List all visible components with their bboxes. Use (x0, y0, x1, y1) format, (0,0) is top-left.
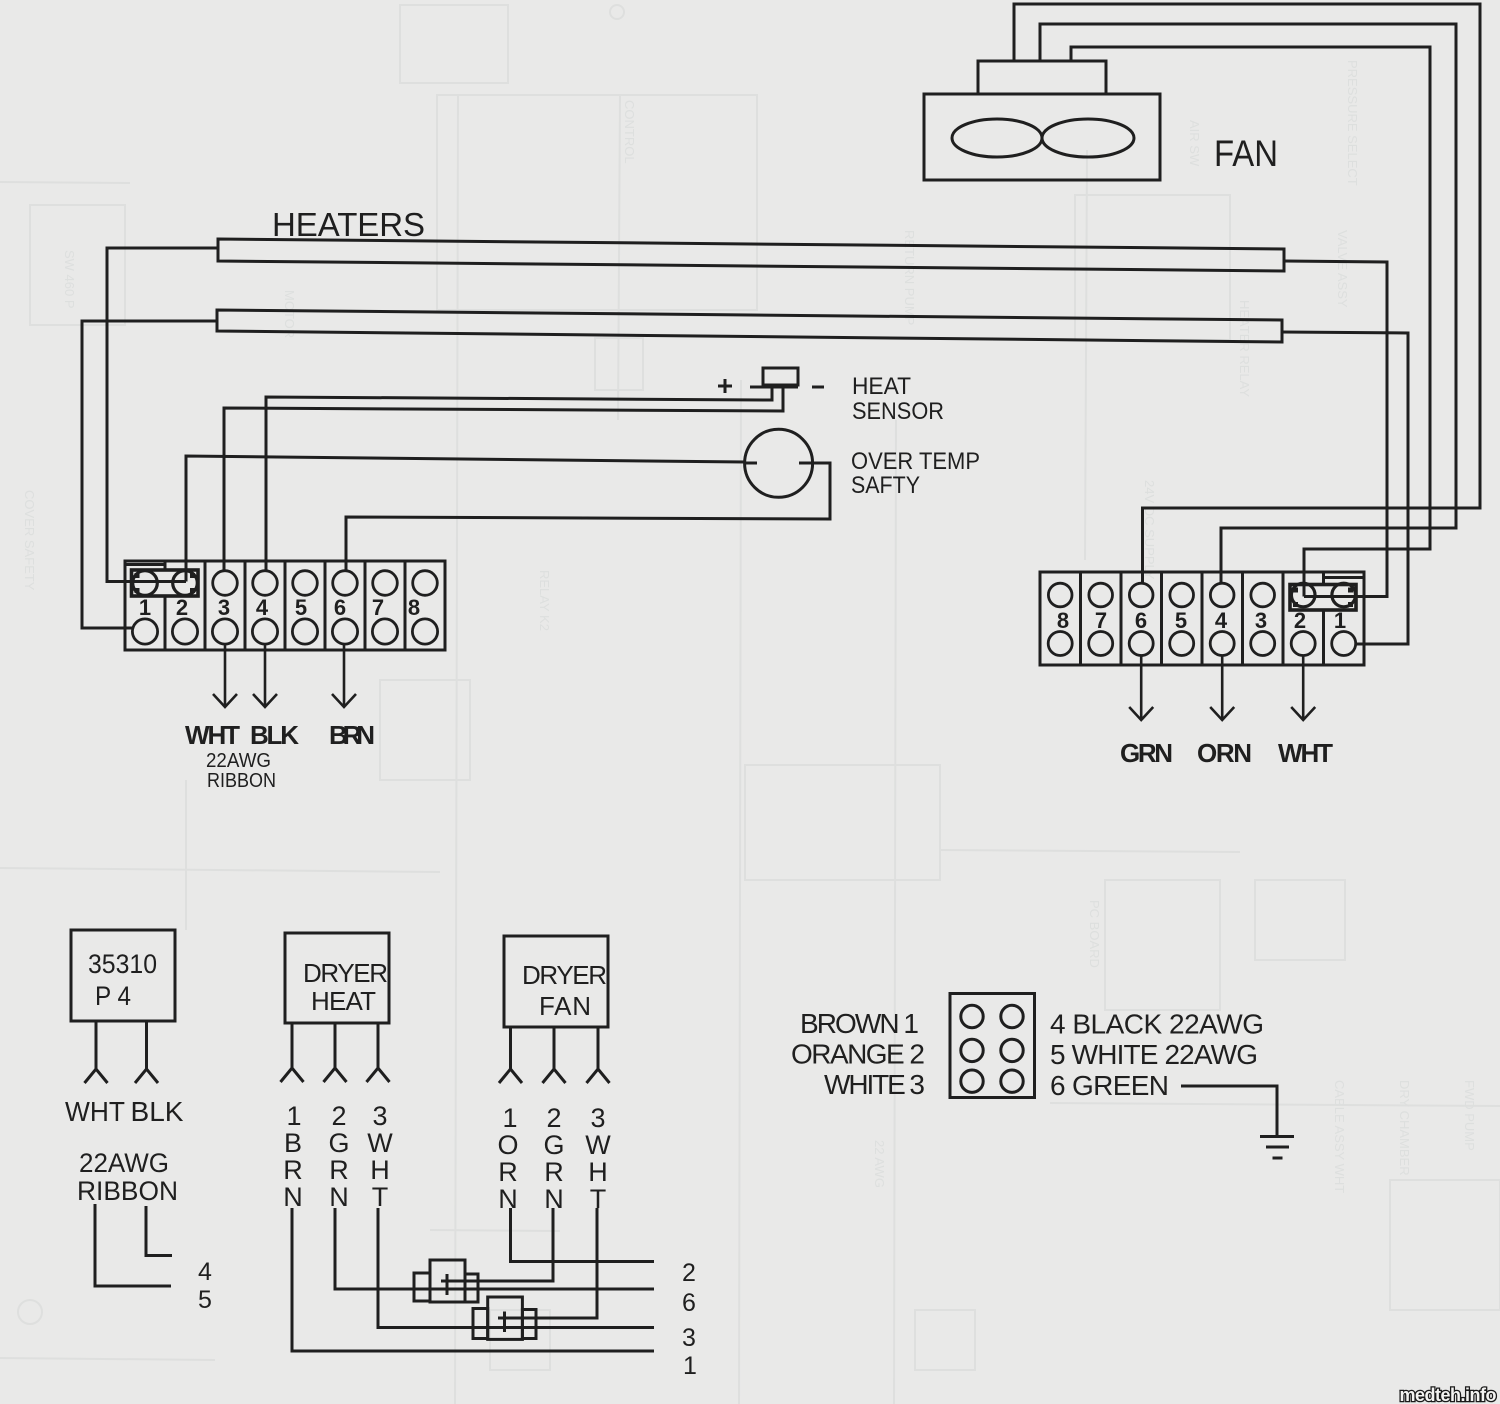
svg-text:6: 6 (1135, 608, 1147, 633)
svg-text:2: 2 (331, 1101, 346, 1131)
svg-text:DRY CHAMBER: DRY CHAMBER (1397, 1080, 1412, 1176)
svg-text:RIBBON: RIBBON (207, 770, 276, 792)
svg-text:2: 2 (682, 1259, 696, 1287)
svg-text:O: O (497, 1130, 518, 1160)
svg-text:BLK: BLK (250, 720, 299, 750)
svg-text:HEATERS: HEATERS (272, 206, 425, 243)
svg-text:T: T (372, 1182, 389, 1212)
svg-text:T: T (590, 1184, 607, 1214)
svg-text:SW 460 P: SW 460 P (62, 250, 77, 309)
svg-text:RELAY K2: RELAY K2 (537, 570, 552, 631)
svg-text:G: G (328, 1128, 349, 1158)
svg-text:4 BLACK 22AWG: 4 BLACK 22AWG (1050, 1009, 1264, 1040)
svg-text:5: 5 (198, 1286, 212, 1314)
svg-text:DRYER: DRYER (303, 958, 388, 988)
svg-text:3: 3 (218, 595, 230, 620)
svg-text:R: R (283, 1155, 303, 1185)
svg-text:B: B (284, 1128, 302, 1158)
svg-text:1: 1 (1334, 608, 1346, 633)
svg-text:WHT: WHT (185, 720, 240, 750)
svg-text:SENSOR: SENSOR (852, 398, 944, 425)
svg-text:PC BOARD: PC BOARD (1087, 900, 1102, 968)
svg-text:G: G (543, 1130, 564, 1160)
svg-text:HEAT: HEAT (852, 373, 911, 400)
svg-text:GRN: GRN (1120, 738, 1173, 768)
svg-text:2: 2 (546, 1103, 561, 1133)
svg-text:22 AWG: 22 AWG (872, 1140, 887, 1188)
svg-text:N: N (329, 1182, 349, 1212)
svg-text:AIR SW: AIR SW (1187, 120, 1202, 167)
svg-text:FAN: FAN (539, 991, 591, 1021)
svg-text:3: 3 (682, 1324, 696, 1352)
svg-text:WHT: WHT (65, 1096, 125, 1127)
svg-text:22AWG: 22AWG (79, 1148, 169, 1178)
svg-text:N: N (498, 1184, 518, 1214)
svg-text:N: N (544, 1184, 564, 1214)
svg-text:DRYER: DRYER (522, 960, 607, 990)
svg-text:H: H (370, 1155, 390, 1185)
svg-text:SAFTY: SAFTY (851, 472, 920, 499)
svg-text:BROWN 1: BROWN 1 (800, 1008, 919, 1039)
svg-text:8: 8 (408, 595, 420, 620)
svg-text:3: 3 (590, 1103, 605, 1133)
svg-text:R: R (329, 1155, 349, 1185)
svg-text:1: 1 (286, 1101, 301, 1131)
svg-text:5: 5 (295, 595, 307, 620)
svg-text:7: 7 (372, 595, 384, 620)
svg-text:3: 3 (1255, 608, 1267, 633)
svg-text:FAN: FAN (1214, 133, 1278, 174)
svg-text:H: H (588, 1157, 608, 1187)
svg-text:RIBBON: RIBBON (77, 1176, 178, 1206)
svg-text:VALVE ASSY: VALVE ASSY (1335, 230, 1350, 308)
svg-text:1: 1 (683, 1352, 697, 1380)
svg-text:CABLE ASSY WHT: CABLE ASSY WHT (1332, 1080, 1347, 1193)
svg-text:3: 3 (372, 1101, 387, 1131)
svg-text:CONTROL: CONTROL (622, 100, 637, 164)
svg-text:PRESSURE SELECT: PRESSURE SELECT (1345, 60, 1360, 186)
svg-text:6: 6 (682, 1289, 696, 1317)
svg-text:22AWG: 22AWG (206, 750, 271, 772)
svg-text:COVER SAFETY: COVER SAFETY (22, 490, 37, 591)
svg-text:6 GREEN: 6 GREEN (1050, 1070, 1169, 1101)
svg-text:4: 4 (1215, 608, 1228, 633)
svg-text:BLK: BLK (131, 1096, 184, 1127)
svg-text:2: 2 (1294, 608, 1306, 633)
svg-text:2: 2 (176, 595, 188, 620)
svg-text:1: 1 (139, 595, 151, 620)
svg-text:ORN: ORN (1197, 738, 1252, 768)
svg-text:24V DC SUPPLY: 24V DC SUPPLY (1142, 480, 1157, 580)
svg-text:P 4: P 4 (95, 981, 131, 1011)
svg-text:4: 4 (256, 595, 269, 620)
svg-text:N: N (283, 1182, 303, 1212)
svg-text:6: 6 (334, 595, 346, 620)
svg-text:8: 8 (1057, 608, 1069, 633)
svg-text:5: 5 (1175, 608, 1187, 633)
svg-text:35310: 35310 (88, 949, 157, 979)
svg-text:W: W (585, 1130, 611, 1160)
svg-text:1: 1 (502, 1103, 517, 1133)
svg-text:HEAT: HEAT (311, 986, 376, 1016)
svg-text:OVER TEMP: OVER TEMP (851, 448, 980, 475)
svg-text:ORANGE 2: ORANGE 2 (791, 1039, 925, 1070)
svg-text:R: R (498, 1157, 518, 1187)
svg-text:WHT: WHT (1278, 738, 1333, 768)
svg-text:7: 7 (1095, 608, 1107, 633)
svg-text:5 WHITE 22AWG: 5 WHITE 22AWG (1050, 1039, 1258, 1070)
svg-text:medteh.info: medteh.info (1400, 1385, 1497, 1404)
svg-text:BRN: BRN (329, 720, 375, 750)
svg-text:FWD PUMP: FWD PUMP (1462, 1080, 1477, 1151)
svg-text:HEATER RELAY: HEATER RELAY (1237, 300, 1252, 397)
svg-text:R: R (544, 1157, 564, 1187)
svg-text:W: W (367, 1128, 393, 1158)
svg-text:4: 4 (198, 1258, 212, 1286)
svg-text:WHITE 3: WHITE 3 (824, 1069, 925, 1100)
